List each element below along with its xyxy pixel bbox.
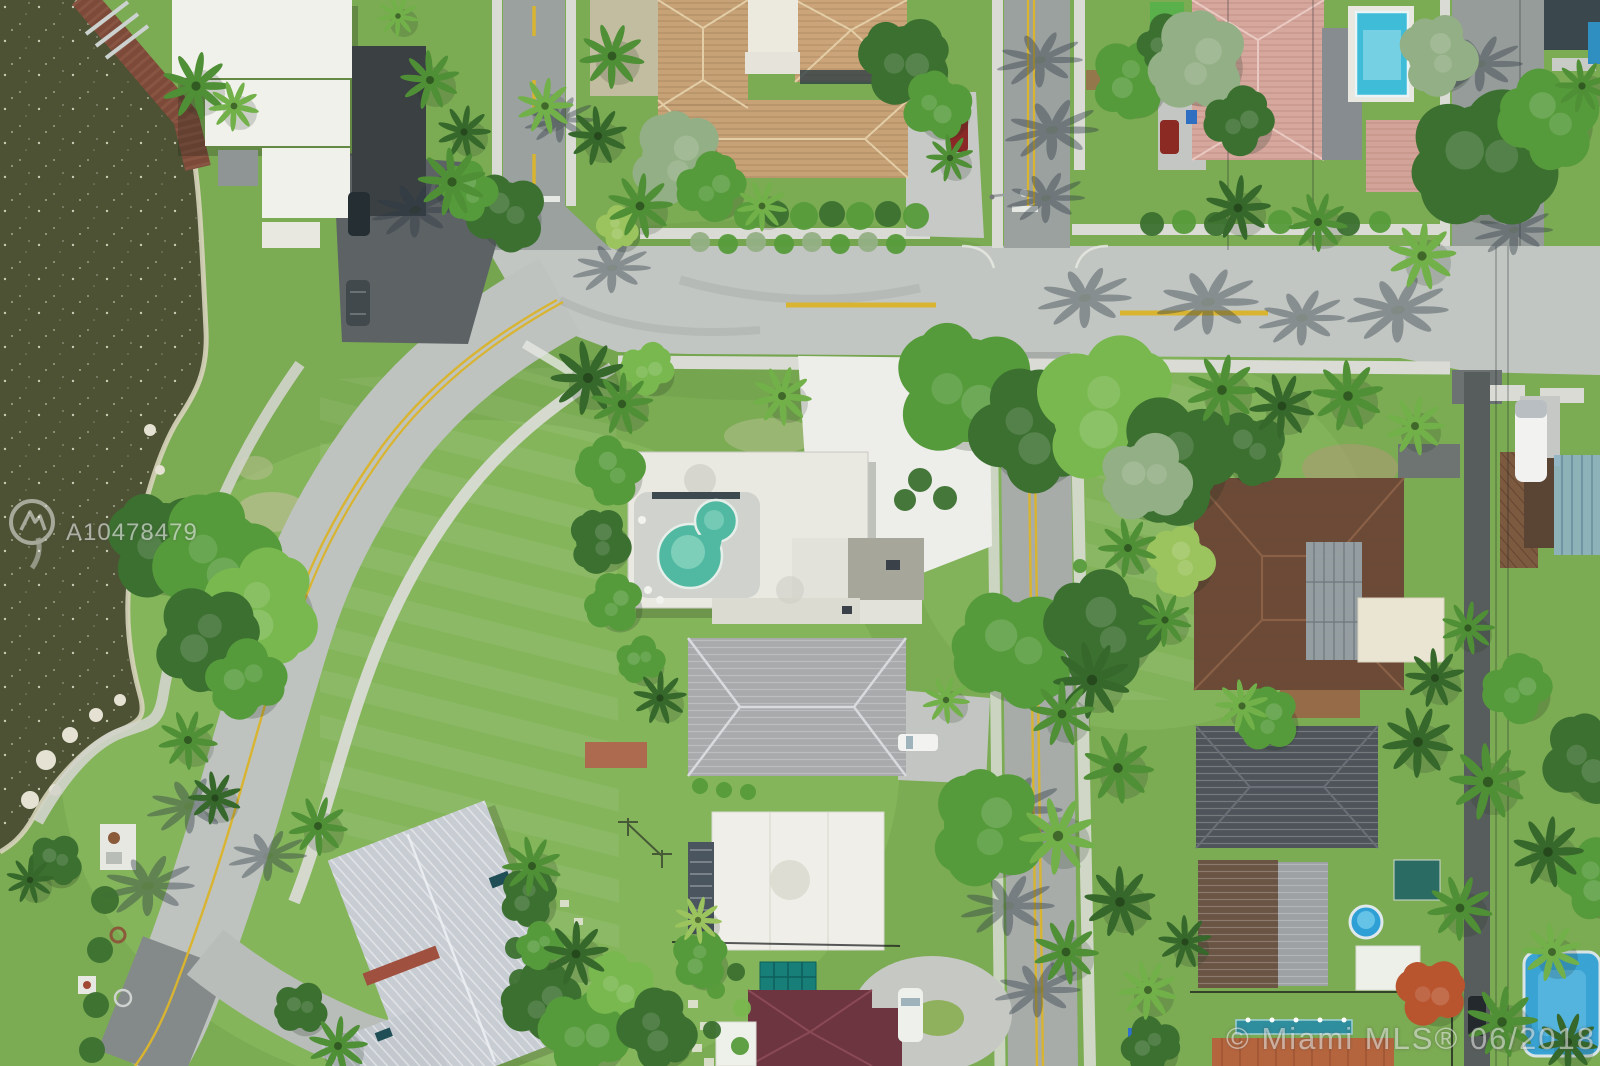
- shrub: [819, 201, 845, 227]
- shrub: [716, 782, 732, 798]
- pool-round: [1350, 906, 1382, 938]
- dry-grass-patch: [724, 418, 816, 454]
- shrub: [690, 232, 710, 252]
- sidewalk-south: [618, 362, 1450, 368]
- shrub: [91, 886, 119, 914]
- pool-corner-top: [1588, 22, 1600, 64]
- car-dark: [348, 192, 370, 236]
- shrub: [894, 489, 916, 511]
- shrub: [1140, 212, 1164, 236]
- shrub: [802, 232, 822, 252]
- shrub: [858, 232, 878, 252]
- rv-cab: [1515, 400, 1547, 418]
- suv-white: [898, 988, 923, 1042]
- brick-patio: [585, 742, 647, 768]
- shrub: [727, 963, 745, 981]
- patio: [262, 222, 320, 248]
- shrub: [83, 992, 109, 1018]
- shrub: [703, 1021, 721, 1039]
- aerial-photo-stage: A10478479 © Miami MLS® 06/2018: [0, 0, 1600, 1066]
- shrub: [692, 778, 708, 794]
- recycle-bin-blue: [1186, 110, 1197, 124]
- shrub: [830, 234, 850, 254]
- shrub: [1073, 559, 1087, 573]
- shrub: [718, 234, 738, 254]
- shrub: [746, 232, 766, 252]
- lanai-grid: [1306, 542, 1362, 660]
- shrub: [740, 784, 756, 800]
- shrub: [1172, 210, 1196, 234]
- courtyard: [748, 0, 798, 55]
- canopy-teal: [760, 962, 816, 992]
- rooftop-unit: [886, 560, 900, 570]
- aerial-photo: [0, 0, 1600, 1066]
- rooftop-unit: [842, 606, 852, 614]
- pool-turquoise: [1356, 12, 1408, 96]
- car-white: [898, 734, 938, 751]
- walkway-white: [745, 52, 800, 74]
- car-red: [1160, 120, 1179, 154]
- shrub: [790, 202, 818, 230]
- shrub: [774, 234, 794, 254]
- shrub: [903, 203, 929, 229]
- shrub: [933, 486, 957, 510]
- shrub: [87, 937, 113, 963]
- roof-stain: [684, 464, 716, 496]
- shrub: [731, 1037, 749, 1055]
- sidewalk-street: [992, 0, 1003, 248]
- utility-box: [106, 852, 122, 864]
- roof-stain: [770, 860, 810, 900]
- manhole: [108, 832, 120, 844]
- listing-id-text: A10478479: [66, 519, 198, 547]
- pool-screen-enclosure: [1554, 455, 1600, 555]
- watermark-listing-id: A10478479: [6, 496, 198, 570]
- watermark-copyright: © Miami MLS® 06/2018: [1226, 1021, 1596, 1057]
- shrub: [1268, 210, 1292, 234]
- shrub: [1369, 211, 1391, 233]
- roof-stain: [776, 576, 804, 604]
- shrub: [908, 468, 932, 492]
- shade-bar: [652, 492, 740, 499]
- flat-roof-charcoal: [352, 46, 426, 216]
- roof-wing: [872, 1008, 902, 1066]
- shrub: [733, 999, 751, 1017]
- shrub: [875, 201, 901, 227]
- mls-swoosh-logo: [6, 496, 58, 570]
- car-dark: [346, 280, 370, 326]
- shrub: [846, 202, 874, 230]
- roof-gray-section: [218, 150, 258, 186]
- flat-roof-white: [262, 148, 350, 218]
- shrub: [79, 1037, 105, 1063]
- shrub: [886, 234, 906, 254]
